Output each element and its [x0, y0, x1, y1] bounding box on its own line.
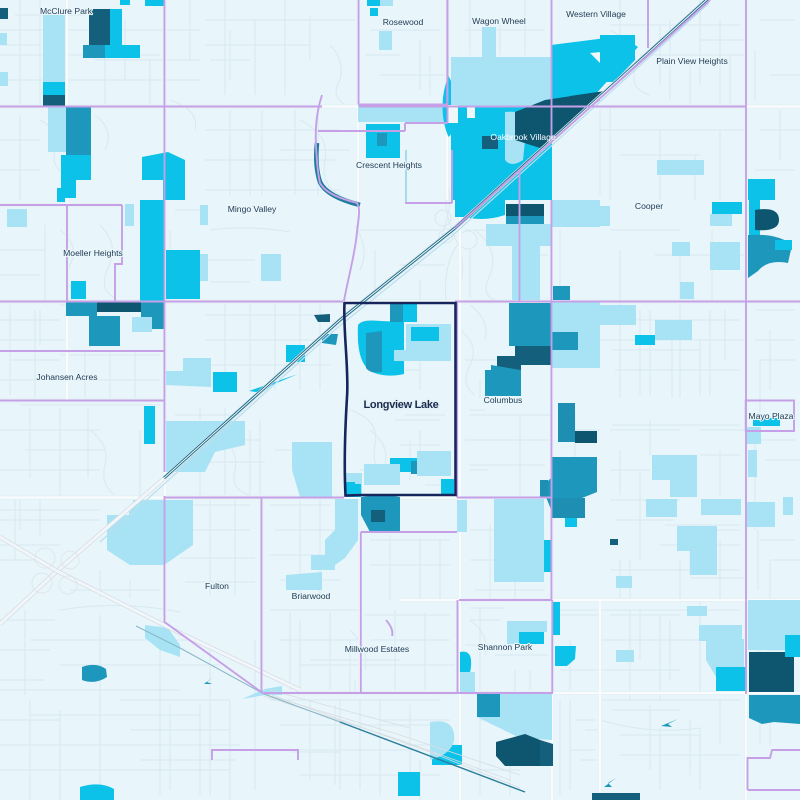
svg-text:Mayo Plaza: Mayo Plaza — [749, 411, 794, 421]
svg-text:Longview Lake: Longview Lake — [364, 399, 439, 411]
svg-text:Mingo Valley: Mingo Valley — [228, 204, 277, 214]
svg-text:Shannon Park: Shannon Park — [478, 642, 533, 652]
svg-text:Wagon Wheel: Wagon Wheel — [472, 16, 526, 26]
svg-text:McClure Park: McClure Park — [40, 6, 93, 16]
svg-text:Plain View Heights: Plain View Heights — [656, 56, 728, 66]
svg-text:Rosewood: Rosewood — [383, 17, 424, 27]
svg-text:Millwood Estates: Millwood Estates — [345, 644, 409, 654]
svg-text:Briarwood: Briarwood — [292, 591, 331, 601]
svg-text:Johansen Acres: Johansen Acres — [36, 372, 97, 382]
svg-text:Columbus: Columbus — [484, 395, 523, 405]
svg-text:Cooper: Cooper — [635, 201, 663, 211]
svg-text:Oakbrook Village: Oakbrook Village — [490, 132, 556, 142]
svg-text:Moeller Heights: Moeller Heights — [63, 248, 123, 258]
svg-text:Crescent Heights: Crescent Heights — [356, 160, 422, 170]
svg-text:Fulton: Fulton — [205, 581, 229, 591]
svg-text:Western Village: Western Village — [566, 9, 626, 19]
